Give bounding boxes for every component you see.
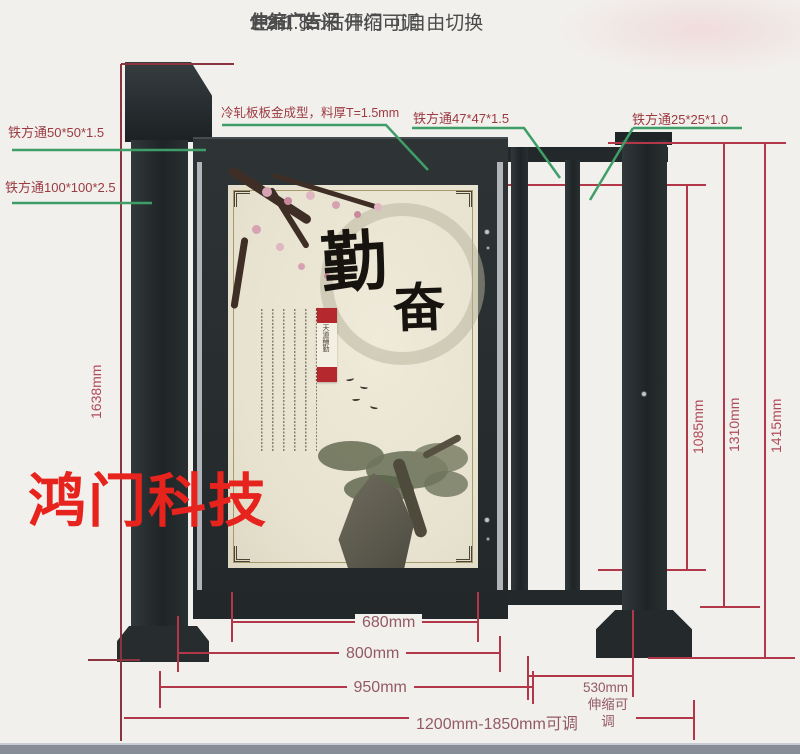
callout-tube-25: 铁方通25*25*1.0 [632,109,728,128]
panel-corner-ornament [456,191,472,207]
panel-corner-ornament [456,546,472,562]
fence-left-stile [511,147,528,604]
door-lock-dot [484,229,490,235]
dim-label-530-note: 伸缩可调 [580,697,636,731]
dim-label-680-text: 680mm [355,614,422,632]
plum-blossom [374,203,382,211]
dim-label-950-text: 950mm [347,679,414,697]
scan-artifact [555,0,800,75]
right-post [622,140,667,612]
seal-banner: 天道酬勤 [316,308,337,382]
callout-tube-50: 铁方通50*50*1.5 [8,122,104,141]
seal-banner-text: 天道酬勤 [322,324,329,366]
opening-direction-subtitle: 左开门、右开门 可自由切换 [250,8,483,35]
seal-banner-top [316,308,337,323]
panel-corner-ornament [234,191,250,207]
callout-cold-rolled-plate: 冷轧板板金成型，料厚T=1.5mm [221,102,399,121]
calligraphy-fen: 奋 [392,282,446,336]
post-lock-dot [641,391,647,397]
door-right-highlight [497,162,503,590]
plum-blossom [306,191,315,200]
product-diagram: 勤 奋 天道酬勤 [0,0,800,754]
left-post [131,140,188,630]
seal-banner-bottom [316,367,337,382]
plum-blossom [354,211,361,218]
fence-slat [565,160,580,602]
panel-corner-ornament [234,546,250,562]
door-lock-dot [484,517,490,523]
vertical-poem-columns [261,309,317,451]
plum-blossom [262,187,272,197]
company-watermark: 鸿门科技 [28,454,268,538]
plum-blossom [332,201,340,209]
plum-blossom [276,243,284,251]
dim-label-1415: 1415mm [768,371,784,453]
dim-label-1638: 1638mm [88,327,104,419]
gate-motor-housing [125,62,212,142]
dim-label-1310: 1310mm [726,374,742,452]
callout-tube-100: 铁方通100*100*2.5 [5,177,116,196]
dim-label-530-text: 530mm [580,680,631,697]
dim-label-530: 530mm 伸缩可调 [524,680,636,697]
callout-tube-47: 铁方通47*47*1.5 [413,108,509,127]
door-keyhole-dot [486,246,490,250]
pine-foliage [424,471,468,497]
dim-label-800-text: 800mm [339,645,406,663]
right-post-base [596,610,692,658]
dim-label-1085: 1085mm [690,372,706,454]
plum-blossom [298,263,305,270]
plum-blossom [252,225,261,234]
dim-label-1200-1850-text: 1200mm-1850mm可调 [409,710,585,734]
door-keyhole-dot [486,537,490,541]
left-post-base [117,626,209,662]
ground-strip [0,743,800,754]
dim-800 [178,616,500,672]
calligraphy-qin: 勤 [319,227,389,297]
plum-blossom [284,197,292,205]
fence-bottom-rail [508,590,635,605]
